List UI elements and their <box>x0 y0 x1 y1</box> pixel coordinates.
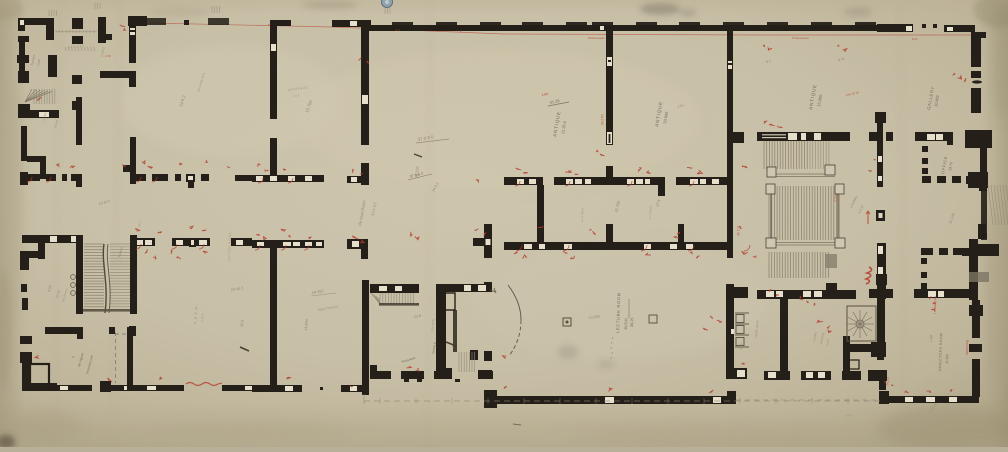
svg-text:14 2 50: 14 2 50 <box>600 114 604 125</box>
svg-text:M Rousseau: M Rousseau <box>588 36 605 40</box>
svg-text:26 ft: 26 ft <box>240 320 245 327</box>
svg-text:2 10 2: 2 10 2 <box>200 313 205 322</box>
svg-text:4 x 4 Room: 4 x 4 Room <box>580 207 585 222</box>
svg-text:4 x 4 Room: 4 x 4 Room <box>648 205 653 220</box>
svg-text:N 2 40: N 2 40 <box>736 226 740 236</box>
svg-text:Luigi: Luigi <box>929 334 933 342</box>
svg-text:the Antique r: the Antique r <box>933 296 937 315</box>
svg-text:43-8: 43-8 <box>739 343 744 350</box>
svg-text:26.282: 26.282 <box>415 166 420 178</box>
svg-text:M Rousseau: M Rousseau <box>792 36 809 40</box>
svg-text:2 40: 2 40 <box>105 54 111 58</box>
svg-text:M R: M R <box>912 37 918 41</box>
svg-text:39.25: 39.25 <box>630 317 634 327</box>
svg-text:Rousseau: Rousseau <box>965 340 969 355</box>
svg-text:11.500: 11.500 <box>945 354 949 364</box>
svg-text:M 2: M 2 <box>395 28 400 32</box>
svg-text:49.500: 49.500 <box>624 318 628 330</box>
